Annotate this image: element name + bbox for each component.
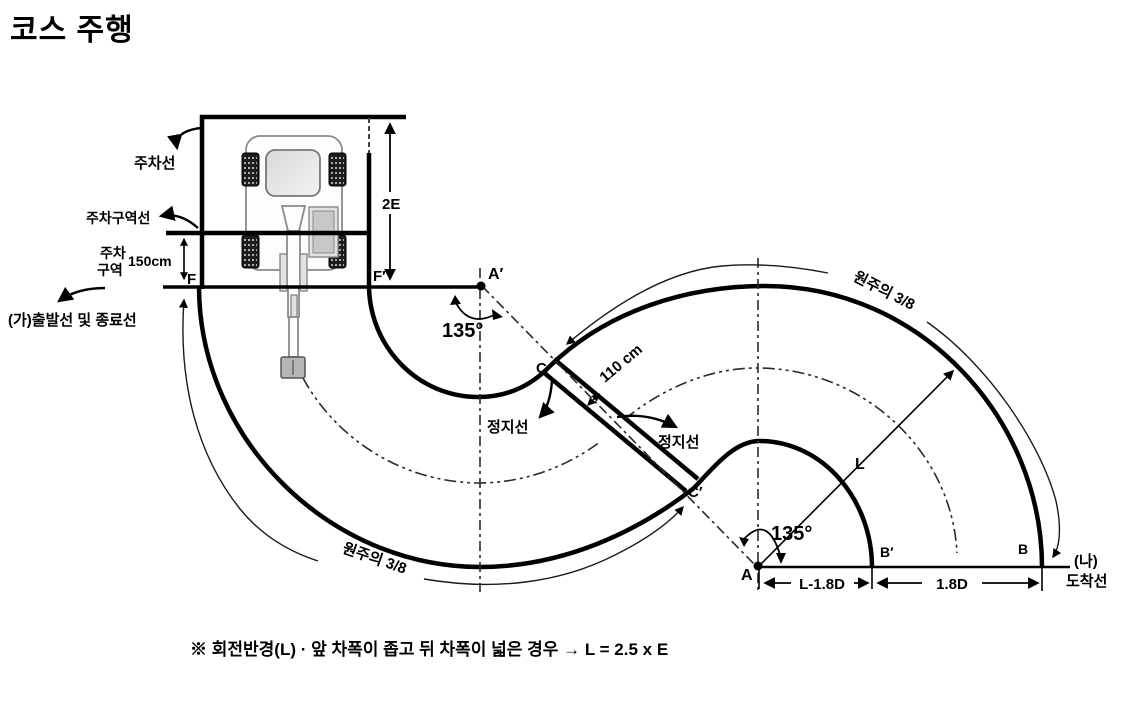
label-b-prime: B′ [880,544,894,560]
course-diagram: 코스 주행 [0,0,1121,703]
note-turning-radius: ※ 회전반경(L) · 앞 차폭이 좁고 뒤 차폭이 넓은 경우 → L = 2… [190,639,668,659]
leader-parking-line [177,128,201,148]
course-left-inner-arc [369,288,550,397]
course-driving-diagram-page: 코스 주행 [0,0,1121,703]
angle-arc-a-prime [456,303,494,319]
vehicle-tire-rear-left [242,235,259,268]
vehicle-tire-front-right [329,153,346,186]
label-150cm: 150cm [128,253,172,269]
label-a: A [741,567,753,584]
vehicle-boom [287,231,300,287]
direction-arc-left-to-c-prime [424,507,683,584]
label-start-end-line: (가)출발선 및 종료선 [8,311,137,329]
vehicle-tire-front-left [242,153,259,186]
label-f-prime: F′ [373,268,386,285]
label-dim-18d: 1.8D [936,576,968,593]
label-parking-zone-2: 구역 [97,262,123,278]
label-c-prime: C′ [688,484,703,501]
label-b: B [1018,541,1028,557]
course-right-inner-arc [694,441,872,567]
point-a [754,562,763,571]
angle-arrowhead-a-diag [739,537,749,547]
label-110cm: 110 cm [596,341,645,386]
label-parking-line: 주차선 [134,155,175,172]
label-arc-right: 원주의 3/8 [851,267,918,313]
leader-parking-zone-line [161,215,198,228]
label-parking-zone-line: 주차구역선 [86,210,150,226]
leader-start-line [59,288,105,301]
label-a-prime: A′ [488,266,504,283]
angle-arrowhead-a-prime-diag [492,309,503,320]
vehicle-top-view [242,136,346,378]
label-2e: 2E [382,196,400,213]
vehicle-arm [289,317,298,357]
label-f: F [187,271,196,288]
label-c: C [536,360,547,377]
vehicle-cab [266,150,320,196]
label-stop-line-right: 정지선 [658,433,699,451]
label-parking-zone-1: 주차 [100,245,126,261]
direction-arc-right-to-c [567,265,828,344]
angle-arrowhead-a-prime-up [450,295,461,305]
label-finish-2: 도착선 [1066,573,1107,590]
label-dim-l-minus-18d: L-1.8D [799,576,845,593]
label-angle-right: 135° [771,523,812,545]
label-stop-line-left: 정지선 [487,418,528,436]
label-angle-left: 135° [442,320,483,342]
point-a-prime [477,282,486,291]
label-radius-l: L [855,456,865,473]
angle-arrowhead-a-down [776,553,786,564]
leader-stop-line-left [540,381,552,417]
label-finish-1: (나) [1074,553,1098,570]
page-title: 코스 주행 [10,14,134,47]
